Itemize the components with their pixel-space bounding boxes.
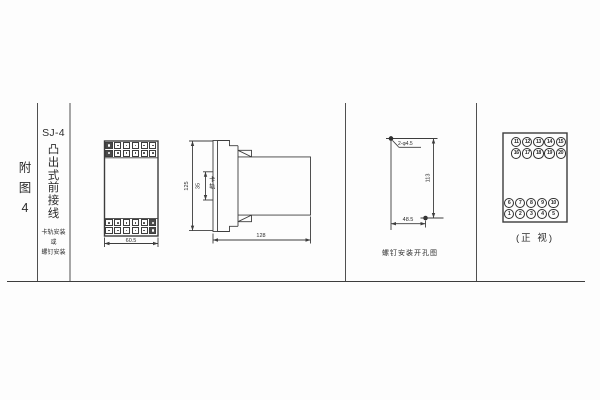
title-char: 接: [48, 195, 60, 208]
dim-depth-128: 128: [248, 233, 274, 239]
terminal-screw: [123, 142, 130, 149]
figure-char: 图: [19, 182, 32, 194]
mounting-note-line: 螺钉安装: [38, 249, 69, 259]
terminal-screw: [141, 142, 148, 149]
terminal-screw: [132, 150, 139, 157]
drill-holes-label: 2-φ4.5: [398, 141, 413, 147]
terminal-screw: [141, 150, 148, 157]
terminal-number: 19: [544, 148, 554, 158]
terminal-number: 20: [556, 148, 566, 158]
title-char: 前: [48, 182, 60, 195]
terminal-screw: [149, 142, 156, 149]
terminal-screw: [105, 227, 112, 234]
terminal-row-11-15: 1112131415: [511, 137, 566, 147]
terminal-row-6-10: 678910: [504, 198, 559, 208]
front-view-terminal-row: [105, 219, 156, 226]
terminal-number: 9: [537, 198, 547, 208]
terminal-screw: [114, 219, 121, 226]
figure-4-drawing-sheet: 附 图 4 SJ-4 凸 出 式 前 接 线 卡轨安装 或 螺钉安装 60.5 …: [0, 0, 600, 400]
figure-char: 4: [22, 202, 29, 214]
terminal-number: 4: [537, 209, 547, 219]
terminal-screw: [114, 227, 121, 234]
terminal-number: 3: [526, 209, 536, 219]
terminal-number: 8: [526, 198, 536, 208]
terminal-screw: [132, 219, 139, 226]
terminal-number: 10: [548, 198, 558, 208]
terminal-screw: [105, 150, 112, 157]
title-char: 凸: [48, 144, 60, 157]
title-char: 线: [48, 208, 60, 221]
terminal-screw: [141, 227, 148, 234]
model-label: SJ-4: [38, 127, 69, 139]
front-view-terminal-row: [105, 227, 156, 234]
figure-char: 附: [19, 162, 32, 174]
dim-horizontal-48-5: 48.5: [395, 217, 421, 223]
terminal-screw: [149, 219, 156, 226]
terminal-number: 2: [515, 209, 525, 219]
front-view-terminal-row: [105, 142, 156, 149]
terminal-screw: [123, 150, 130, 157]
terminal-number: 5: [548, 209, 558, 219]
dim-height-125: 125: [184, 177, 190, 195]
terminal-number: 1: [504, 209, 514, 219]
terminal-number: 18: [533, 148, 543, 158]
terminal-screw: [132, 227, 139, 234]
mounting-note: 卡轨安装 或 螺钉安装: [38, 229, 69, 258]
terminal-number: 14: [544, 137, 554, 147]
figure-number-label: 附 图 4: [13, 162, 37, 214]
terminal-number: 16: [511, 148, 521, 158]
drill-view-linework: [386, 136, 444, 230]
terminal-screw: [149, 150, 156, 157]
mounting-note-line: 或: [38, 239, 69, 249]
terminal-number: 11: [511, 137, 521, 147]
drawing-title-vertical: 凸 出 式 前 接 线: [38, 144, 69, 221]
terminal-number: 17: [522, 148, 532, 158]
mounting-note-line: 卡轨安装: [38, 229, 69, 239]
title-char: 出: [48, 157, 60, 170]
title-char: 式: [48, 170, 60, 183]
terminal-screw: [141, 219, 148, 226]
terminal-screw: [105, 219, 112, 226]
dim-rail-35: 35: [196, 179, 202, 192]
terminal-number: 12: [522, 137, 532, 147]
terminal-screw: [149, 227, 156, 234]
dim-vertical-113: 113: [426, 169, 432, 186]
front-view-terminal-row: [105, 150, 156, 157]
terminal-number: 7: [515, 198, 525, 208]
terminal-screw: [114, 150, 121, 157]
terminal-view-caption: (正 视): [501, 230, 569, 244]
drill-view-caption: 螺钉安装开孔图: [374, 248, 446, 258]
terminal-screw: [105, 142, 112, 149]
terminal-number: 15: [556, 137, 566, 147]
terminal-screw: [123, 219, 130, 226]
terminal-screw: [132, 142, 139, 149]
terminal-row-16-20: 1617181920: [511, 148, 566, 158]
sheet-frame-lines: [7, 103, 585, 282]
terminal-screw: [114, 142, 121, 149]
terminal-row-1-5: 12345: [504, 209, 559, 219]
dim-width-60-5: 60.5: [118, 238, 144, 244]
terminal-number: 13: [533, 137, 543, 147]
terminal-number: 6: [504, 198, 514, 208]
rail-label: 卡轨: [207, 176, 214, 198]
terminal-screw: [123, 227, 130, 234]
